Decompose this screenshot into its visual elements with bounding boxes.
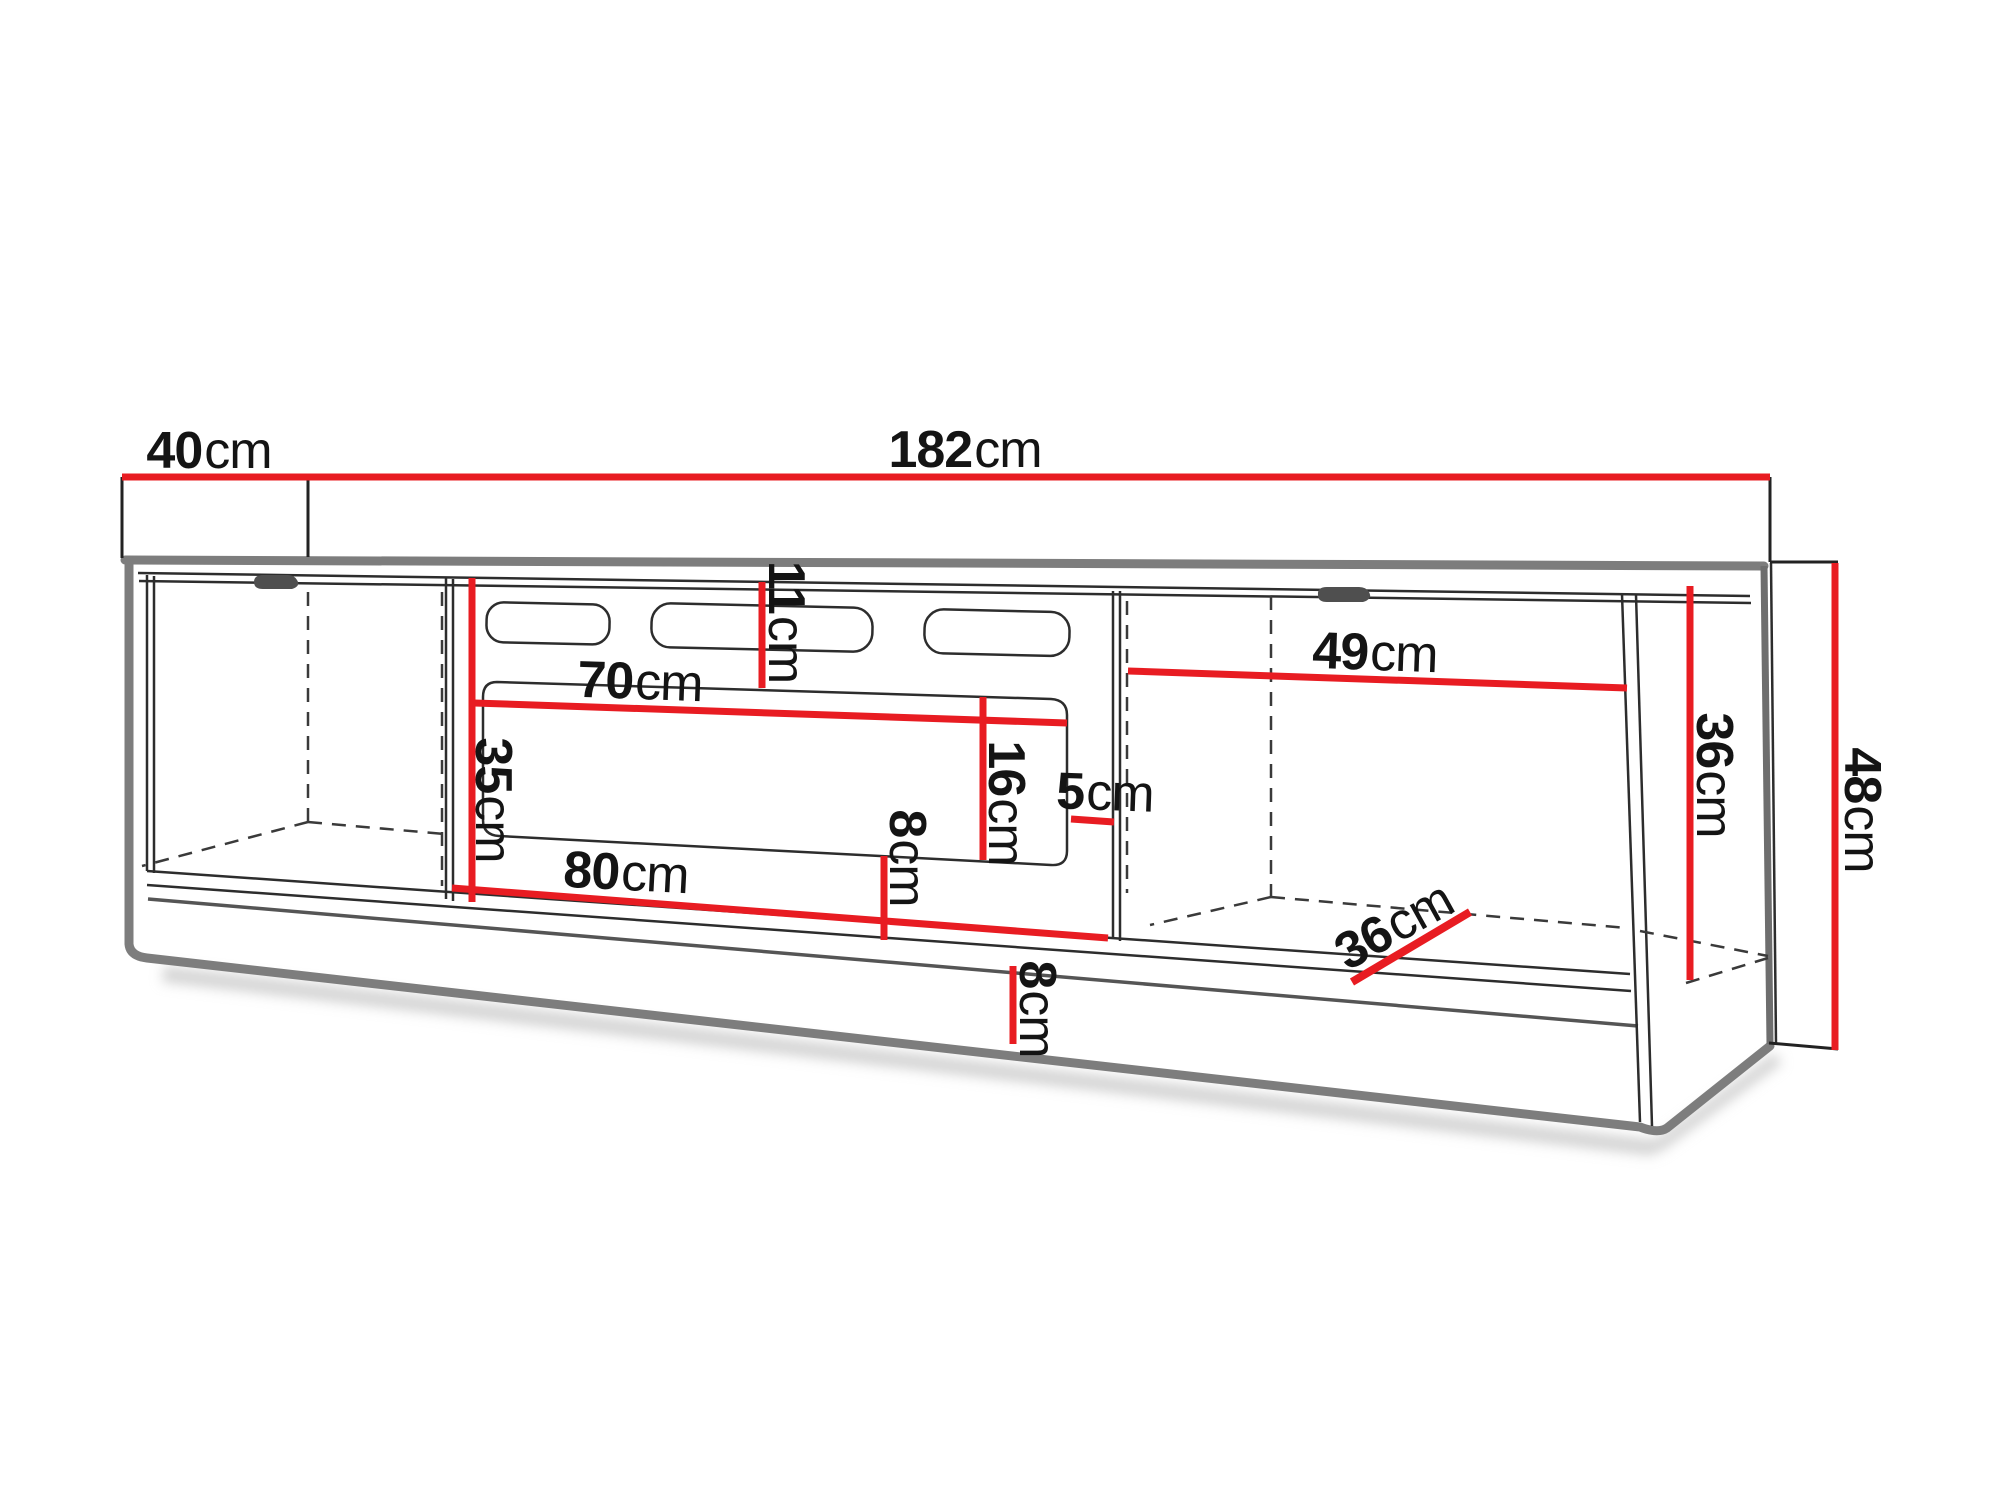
dimension-label-shelf-width: 80cm [562,844,690,902]
dimension-unit: cm [1685,770,1743,837]
dimension-value: 35 [464,737,522,793]
dimension-value: 11 [757,561,815,614]
dimension-label-depth: 40cm [146,425,271,477]
dimension-value: 8 [1008,960,1066,988]
dimension-label-right-interior-height: 36cm [1688,712,1740,837]
left-flap-handle [254,575,298,589]
dimension-unit: cm [1008,990,1066,1057]
dimension-label-side-clearance: 5cm [1055,765,1154,820]
dimension-unit: cm [204,422,271,480]
dimension-label-niche-opening-height: 16cm [980,740,1032,865]
dimension-unit: cm [1085,763,1154,823]
dimension-value: 8 [878,809,936,837]
dimension-label-niche-top-width: 70cm [577,654,704,710]
dimension-value: 36 [1685,712,1743,768]
dimension-value: 48 [1833,747,1891,803]
dimension-value: 40 [146,422,202,480]
dimension-label-plinth-height: 8cm [1011,960,1063,1057]
dimension-unit: cm [974,421,1041,479]
dimension-unit: cm [977,798,1035,865]
dimension-value: 5 [1055,762,1085,821]
outer-right-edge [1764,566,1770,1044]
ventilation-slot-1 [486,602,610,645]
right-flap-handle [1318,587,1370,602]
top-panel-front-edge [125,560,1764,566]
dimension-value: 49 [1311,622,1369,682]
dimension-unit: cm [1833,805,1891,872]
dimension-unit: cm [1369,624,1438,684]
dimension-unit: cm [634,653,703,713]
dimension-unit: cm [878,839,936,906]
dimension-label-top-clearance: 11cm [760,561,812,683]
left-floor-back-dash [308,822,444,834]
dimension-label-right-compartment-width: 49cm [1312,625,1439,681]
left-floor-side-dash [142,822,308,866]
side-face-back-dash [1640,931,1768,956]
dimension-label-below-niche-clearance: 8cm [881,809,933,906]
dimension-label-left-interior-height: 35cm [467,737,519,862]
floor-shadow [163,974,1778,1148]
dimension-value: 16 [977,740,1035,796]
dimension-label-total-height: 48cm [1836,747,1888,872]
right-floor-side-dash [1150,897,1271,925]
dimension-value: 80 [562,841,621,902]
dim-line-70cm [474,703,1067,723]
dimension-unit: cm [464,795,522,862]
cabinet-carcass [125,560,1776,1131]
ventilation-slot-3 [924,609,1070,656]
dimension-value: 182 [888,421,972,479]
outer-left-bottom-edge [129,560,1770,1131]
technical-drawing-canvas: 182cm 40cm 49cm 70cm 11cm 35cm 16cm 5cm … [0,0,2000,1500]
side-face-floor-dash [1686,958,1768,983]
dimension-unit: cm [620,844,690,905]
dimension-unit: cm [757,616,815,683]
dimension-value: 70 [576,651,634,711]
dimension-label-total-width: 182cm [888,424,1041,476]
ext-bottom-right [1769,1043,1838,1049]
